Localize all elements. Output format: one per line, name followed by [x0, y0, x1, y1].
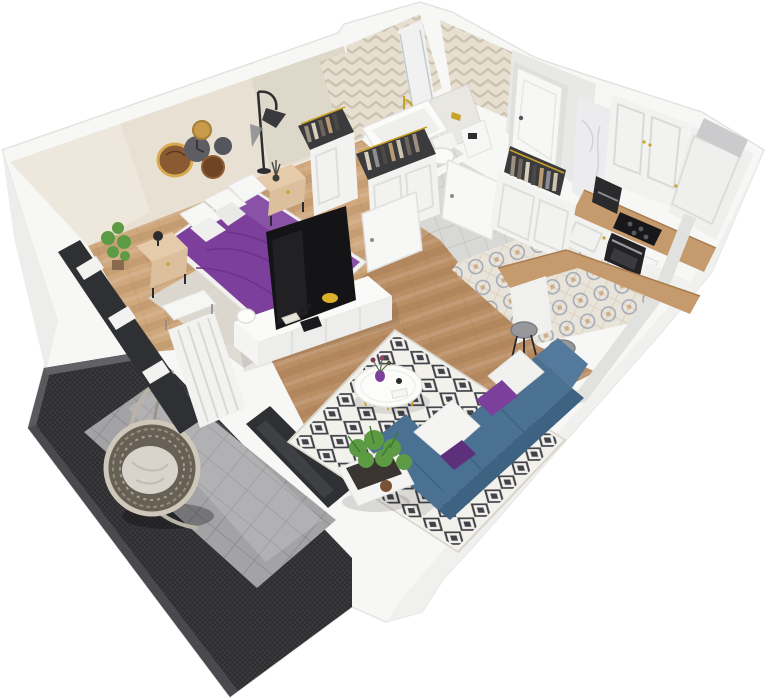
plant-pot — [112, 260, 124, 270]
knob — [674, 184, 677, 187]
flower — [371, 358, 376, 363]
fern-pot — [380, 480, 392, 492]
bedroom-door-handle — [370, 238, 374, 242]
leaf — [107, 246, 119, 258]
drawer-knob — [286, 190, 290, 194]
plant-vase — [273, 175, 280, 182]
drawer-knob — [166, 262, 170, 266]
knob — [602, 236, 605, 239]
console-lamp — [237, 309, 255, 323]
burner — [644, 235, 649, 240]
clothes-item — [547, 171, 549, 189]
fern-leaf — [396, 454, 412, 470]
leaf — [112, 222, 124, 234]
flower — [387, 361, 391, 365]
apartment-render — [0, 0, 779, 700]
decor-disc-dark — [214, 137, 232, 155]
fern-leaf — [364, 430, 384, 450]
flower — [380, 356, 385, 361]
clothes-item — [554, 173, 556, 191]
decor-slice-brown — [202, 156, 224, 178]
clothes-item — [512, 156, 514, 176]
apartment-svg — [0, 0, 779, 700]
burner — [628, 222, 633, 227]
heater-display — [468, 133, 477, 139]
knob — [642, 140, 645, 143]
clothes-item — [533, 165, 535, 185]
leaf — [120, 251, 130, 261]
bathroom-door-handle — [450, 194, 454, 198]
leaf — [117, 235, 131, 249]
candle — [307, 304, 312, 309]
fern-leaf — [358, 452, 374, 468]
leaf — [101, 231, 115, 245]
table-top — [354, 365, 422, 407]
entrance-door-handle — [519, 116, 523, 120]
burner — [639, 227, 644, 232]
fern-leaf — [375, 449, 393, 467]
clothes-item — [540, 168, 542, 188]
decor-slice-gold — [193, 121, 211, 139]
cup — [396, 378, 402, 384]
gold-plate-decor — [322, 293, 338, 303]
burner — [632, 231, 637, 236]
knob — [648, 143, 651, 146]
candle — [300, 308, 305, 313]
clothes-item — [526, 162, 528, 182]
table-lamp — [153, 231, 163, 241]
stool-seat — [511, 322, 537, 338]
clothes-item — [519, 159, 521, 179]
